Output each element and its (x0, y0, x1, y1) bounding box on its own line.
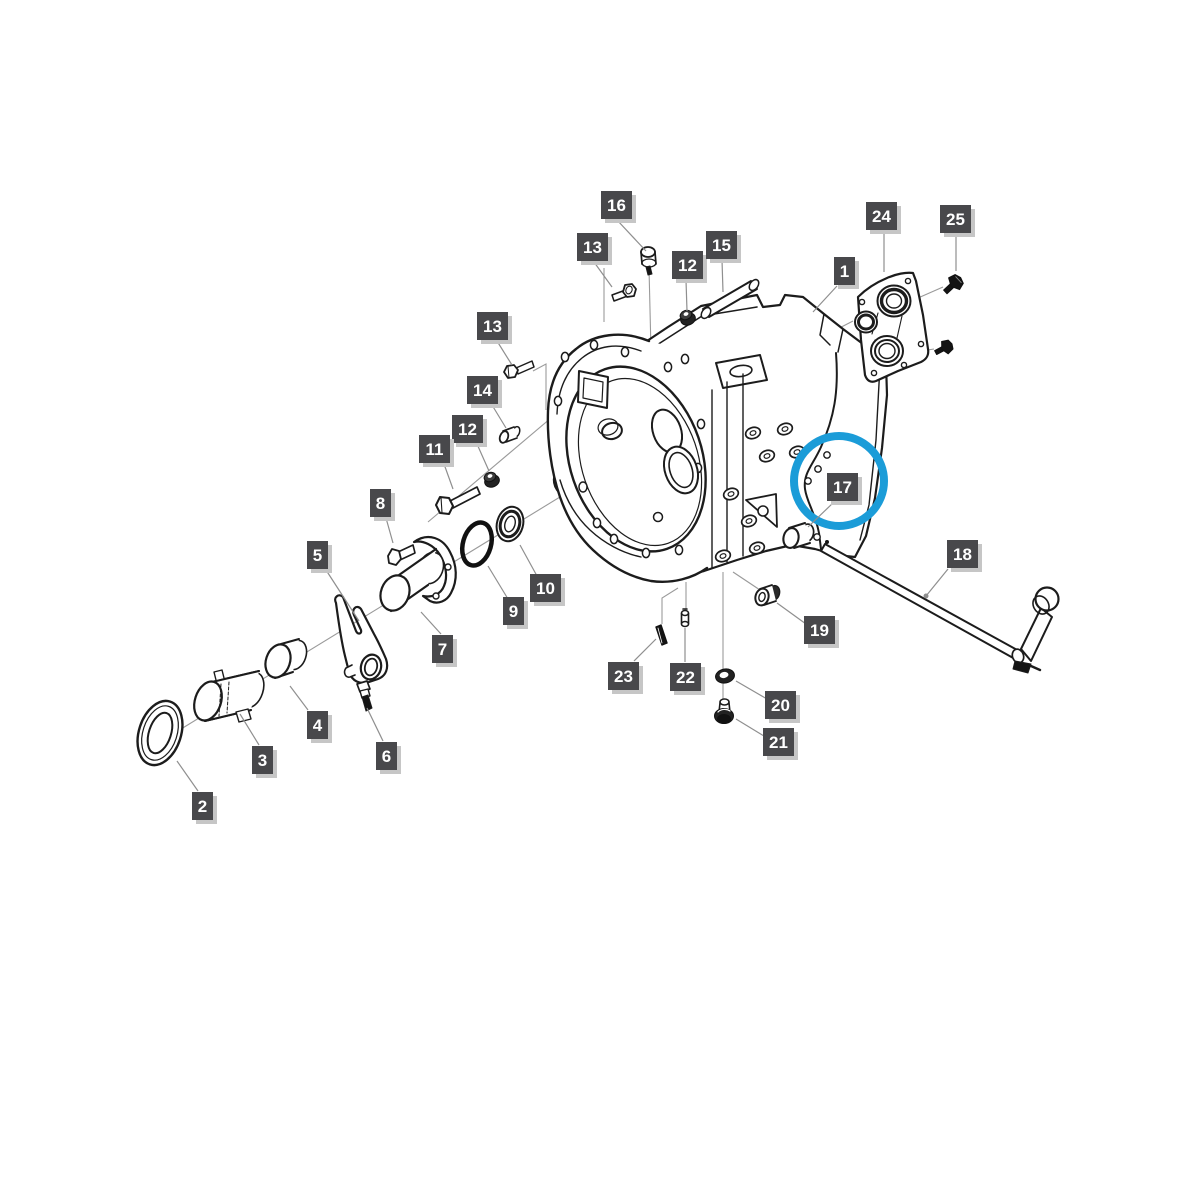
part-callout-12-9: 12 (452, 415, 487, 447)
part-2-seal-ring (130, 695, 190, 771)
part-callout-2-19: 2 (192, 792, 217, 824)
leader-line-part-2 (177, 761, 198, 791)
callout-number: 11 (426, 440, 444, 459)
callout-number: 25 (946, 210, 965, 229)
part-callout-10-13: 10 (530, 574, 565, 606)
callout-number: 1 (840, 262, 849, 281)
part-callout-24-5: 24 (866, 202, 901, 234)
part-callout-13-7: 13 (477, 312, 512, 344)
leader-dot-part-18 (924, 594, 929, 599)
part-callout-5-12: 5 (307, 541, 332, 573)
callout-number: 19 (810, 621, 829, 640)
callout-number: 4 (313, 716, 323, 735)
callout-number: 18 (953, 545, 972, 564)
part-24-side-cover (855, 273, 928, 382)
part-callout-9-14: 9 (503, 597, 528, 629)
part-callout-17-20: 17 (827, 473, 862, 505)
leader-line-part-4 (290, 686, 308, 710)
leader-line-part-14 (492, 405, 506, 428)
part-11-bolt (436, 487, 480, 514)
callout-number: 5 (313, 546, 322, 565)
part-13-bolt-lower (504, 361, 534, 378)
part-callout-4-16: 4 (307, 711, 332, 743)
part-4-bushing (261, 638, 310, 681)
leader-line-part-18 (926, 569, 948, 596)
callout-number: 12 (678, 256, 697, 275)
part-9-o-ring (457, 519, 496, 569)
part-8-bolt (388, 545, 415, 565)
part-callout-15-3: 15 (706, 231, 741, 263)
callout-number: 9 (509, 602, 518, 621)
callout-number: 10 (536, 579, 555, 598)
part-20-washer (714, 667, 735, 684)
leader-line-part-12 (477, 444, 489, 471)
part-callout-6-17: 6 (376, 742, 401, 774)
part-22-pin (682, 609, 689, 627)
part-7-release-hub (376, 537, 456, 615)
part-callout-16-0: 16 (601, 191, 636, 223)
part-6-set-screw (357, 681, 372, 711)
part-16-plug (641, 247, 656, 275)
callout-number: 15 (712, 236, 731, 255)
part-21-bolt (715, 699, 734, 724)
callout-number: 13 (483, 317, 502, 336)
leader-line-part-11 (444, 464, 453, 489)
part-callout-23-26: 23 (608, 662, 643, 694)
part-callout-7-15: 7 (432, 635, 457, 667)
part-callout-13-1: 13 (577, 233, 612, 265)
part-callout-3-18: 3 (252, 746, 277, 778)
leader-line-part-6 (367, 708, 383, 741)
callout-number: 24 (872, 207, 891, 226)
part-18-cross-shaft-lever (821, 540, 1059, 673)
part-callout-22-25: 22 (670, 663, 705, 695)
leader-line-part-13 (594, 262, 612, 287)
part-3-release-sleeve (189, 669, 268, 724)
callout-number: 20 (771, 696, 790, 715)
part-callout-12-2: 12 (672, 251, 707, 283)
leader-line-part-8 (386, 518, 393, 543)
leader-line-part-23 (634, 639, 656, 661)
leader-line-part-19 (777, 603, 806, 624)
part-callout-25-6: 25 (940, 205, 975, 237)
callout-number: 13 (583, 238, 602, 257)
part-25-cover-bolts (932, 272, 966, 359)
part-callout-19-22: 19 (804, 616, 839, 648)
callout-number: 21 (769, 733, 788, 752)
parts-diagram-image: 1613121512425131412118510974632171819202… (0, 0, 1200, 1200)
callout-number: 8 (376, 494, 385, 513)
leader-line-part-1 (813, 286, 837, 312)
leader-line-part-12 (686, 280, 687, 311)
callout-number: 22 (676, 668, 695, 687)
part-callout-18-21: 18 (947, 540, 982, 572)
callout-number: 7 (438, 640, 447, 659)
part-13-bolt-upper (612, 284, 636, 301)
leader-line-part-13 (497, 341, 512, 365)
leader-line-part-9 (488, 566, 508, 599)
callout-number: 12 (458, 420, 477, 439)
callout-number: 3 (258, 751, 267, 770)
callout-number: 17 (833, 478, 852, 497)
callout-number: 6 (382, 747, 391, 766)
leader-line-part-20 (736, 681, 767, 699)
part-callout-14-8: 14 (467, 376, 502, 408)
callout-number: 23 (614, 667, 633, 686)
part-23-roll-pin (656, 625, 667, 645)
leader-line-part-10 (520, 545, 537, 576)
part-10-seal (493, 504, 528, 545)
leader-line-part-21 (736, 719, 764, 736)
part-callout-8-11: 8 (370, 489, 395, 521)
part-5-clutch-fork (335, 595, 387, 683)
part-callout-20-23: 20 (765, 691, 800, 723)
leader-line-part-15 (722, 260, 723, 292)
callout-number: 2 (198, 797, 207, 816)
part-callout-1-4: 1 (834, 257, 859, 289)
part-callout-21-24: 21 (763, 728, 798, 760)
part-callout-11-10: 11 (419, 435, 454, 467)
callout-number: 14 (473, 381, 492, 400)
exploded-parts-diagram: 1613121512425131412118510974632171819202… (0, 0, 1200, 1200)
leader-line-part-7 (421, 612, 441, 634)
callout-number: 16 (607, 196, 626, 215)
part-14-pin (498, 426, 521, 444)
leader-line-part-16 (617, 220, 646, 251)
